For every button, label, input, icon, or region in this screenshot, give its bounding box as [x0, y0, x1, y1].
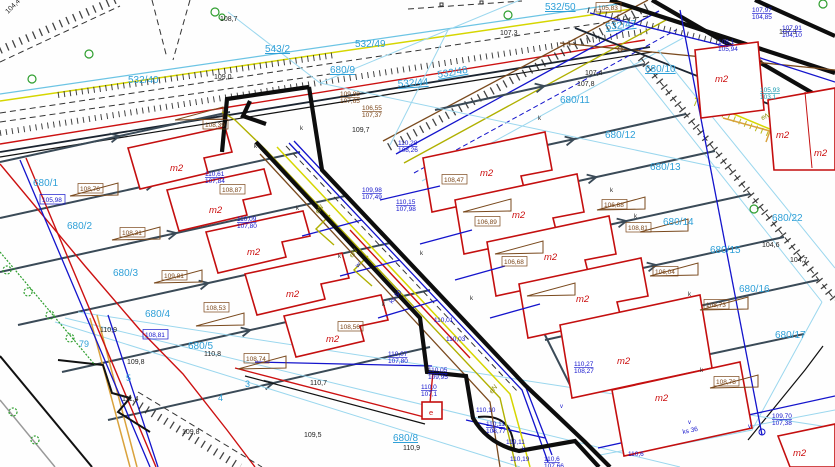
building-label: m2 [617, 356, 631, 367]
map-label: 109,81 [164, 273, 184, 280]
map-label: 110,05 [428, 367, 448, 374]
map-label: 110,11 [486, 421, 505, 428]
water-line-red [0, 40, 645, 144]
parcel-number: 680/3 [113, 268, 138, 279]
map-label: 107,91 [782, 25, 802, 32]
parcel-number: 680/4 [145, 309, 170, 320]
map-label: 104,4 [4, 0, 21, 15]
parcel-number: 680/15 [710, 245, 741, 256]
building-label: m2 [655, 393, 669, 404]
map-canvas: 532/40532/49532/44532/48532/47532/50543/… [0, 0, 835, 467]
tree-icon [211, 8, 219, 16]
map-label: 107,1 [421, 391, 438, 398]
map-label: 110,6 [544, 456, 560, 463]
map-label: 109,7 [352, 127, 370, 134]
map-label: 108,27 [574, 368, 594, 375]
map-label: 108,1 [718, 39, 735, 46]
parcel-number: 680/8 [393, 433, 418, 444]
map-label: 105,83 [598, 5, 618, 12]
map-label: 103,1 [760, 94, 777, 101]
parcel-number: 680/13 [650, 162, 681, 173]
map-label: 109,0 [214, 74, 232, 81]
map-label: 110,9 [403, 445, 420, 452]
map-label: v [688, 420, 691, 426]
roof-arrows [196, 313, 244, 326]
map-label: k [538, 116, 542, 122]
building [695, 42, 764, 118]
map-label: 110,09107,80 [237, 216, 257, 230]
map-label: 79 [79, 339, 89, 349]
map-label: k [610, 188, 614, 194]
map-label: 110,6107,66 [544, 456, 564, 467]
map-label: 110,9 [100, 327, 117, 334]
map-label: 104,7 [790, 257, 808, 264]
map-label: 107,4 [585, 70, 603, 77]
tree-icon [819, 0, 827, 8]
map-label: 107,91104,10 [782, 25, 802, 39]
map-label: 107,97104,85 [752, 7, 772, 21]
parcel-number: 543/2 [265, 44, 290, 55]
map-label: 109,5 [304, 432, 322, 439]
map-label: 110,7 [310, 380, 327, 387]
map-label: 107,80 [388, 358, 408, 365]
map-label: 4 [218, 393, 223, 403]
parcel-number: 532/47 [605, 19, 637, 33]
road-edge-dashed [0, 74, 330, 122]
map-label: 104,85 [752, 14, 772, 21]
map-label: 109,70107,38 [772, 413, 792, 427]
map-label: 108,7 [220, 16, 238, 23]
map-label: 109,8 [127, 359, 145, 366]
map-label: 109,95 [428, 374, 448, 381]
parcel-number: 532/44 [397, 77, 429, 90]
map-label: 107,66 [544, 463, 564, 467]
map-label: 106,88 [604, 202, 624, 209]
building-label: m2 [209, 205, 223, 216]
map-label: 108,47 [444, 177, 464, 184]
parcel-number: 680/17 [775, 330, 806, 341]
parcel-number: 680/16 [739, 284, 770, 295]
map-label: 110,19 [510, 456, 530, 463]
map-label: 110,15 [396, 199, 416, 206]
slope-dashed [138, 392, 262, 467]
map-label: 108,77 [486, 428, 506, 435]
building-label: m2 [326, 334, 340, 345]
map-label: 5 [126, 373, 131, 383]
map-label: 106,55107,37 [362, 105, 382, 119]
building-label: m2 [480, 168, 494, 179]
map-label: 110,09 [237, 216, 257, 223]
map-label: k [300, 126, 304, 132]
map-label: 110,8 [204, 351, 221, 358]
road-edge-navy [0, 47, 650, 152]
parcel-number: 532/49 [355, 39, 386, 50]
building-label: m2 [776, 130, 790, 141]
road-edge-dashed [0, 6, 120, 62]
map-label: 110,6 [628, 451, 644, 458]
map-label: 109,88 [340, 91, 360, 98]
map-label: 107,3 [500, 30, 518, 37]
map-label: 109,98107,49 [362, 187, 382, 201]
driveway-dashed [152, 0, 190, 60]
water-line [235, 368, 433, 418]
water-line [26, 158, 156, 467]
building [778, 424, 835, 467]
tree-icon [85, 50, 93, 58]
map-label: 108,76 [80, 186, 100, 193]
map-label: 107,49 [362, 194, 382, 201]
map-label: 110,0 [421, 384, 437, 391]
map-label: 109,8 [182, 429, 200, 436]
map-label: v [560, 404, 563, 410]
map-label: v [492, 428, 495, 434]
map-label: 110,07 [388, 351, 408, 358]
building-label: m2 [544, 252, 558, 263]
map-label: 110,10 [476, 407, 496, 414]
map-label: 108,39 [205, 122, 225, 129]
building-label: m2 [576, 294, 590, 305]
map-label: 106,04 [655, 269, 675, 276]
building-label: m2 [793, 448, 807, 459]
parcel-number: 680/9 [330, 65, 355, 76]
building-label: m2 [286, 289, 300, 300]
map-label: 110,0107,1 [421, 384, 438, 398]
map-label: 108,53 [206, 305, 226, 312]
map-label: 110,03 [446, 336, 466, 343]
map-label: 106,89 [477, 219, 497, 226]
boundary-thick [243, 101, 266, 124]
parcel-number: 532/40 [128, 75, 159, 86]
parcel-number: 680/10 [645, 64, 676, 75]
map-label: 108,56 [340, 324, 360, 331]
map-label: 109,88107,65 [340, 91, 360, 105]
map-label: 105,93 [760, 87, 780, 94]
map-label: 110,61107,84 [205, 171, 225, 185]
map-label: v [748, 424, 751, 430]
parcel-number: 532/50 [545, 2, 576, 13]
parcel-number: 680/11 [560, 95, 590, 106]
tree-icon [750, 205, 758, 213]
map-label: 105,98 [42, 197, 62, 204]
map-label: 110,11 [506, 439, 525, 446]
building-label: m2 [512, 210, 526, 221]
map-label: 106,68 [504, 259, 524, 266]
map-label: eN [488, 383, 500, 395]
map-label: 110,28 [398, 140, 418, 147]
map-label: 110,11108,77 [486, 421, 506, 435]
map-label: 105,94 [718, 46, 738, 53]
map-label: 108,78 [716, 379, 736, 386]
map-label: v [522, 446, 525, 452]
boundary-black [0, 356, 92, 467]
survey-marker [480, 1, 483, 4]
map-label: 108,26 [398, 147, 418, 154]
map-label: 107,84 [205, 178, 225, 185]
map-label: 111,4 [122, 396, 139, 403]
map-label: 107,80 [237, 223, 257, 230]
heat-line [97, 315, 137, 467]
map-label: 110,61 [205, 171, 225, 178]
map-label: 107,38 [772, 420, 792, 427]
path-dashed [408, 1, 522, 9]
map-label: 107,97 [752, 7, 772, 14]
map-label: 107,8 [577, 81, 595, 88]
map-label: 104,10 [782, 32, 802, 39]
building-label: m2 [814, 148, 828, 159]
building-label: m2 [170, 163, 184, 174]
map-label: 110,07107,80 [388, 351, 408, 365]
survey-marker [440, 3, 443, 6]
parcel-number: 680/2 [67, 221, 92, 232]
map-label: 108,73 [706, 302, 726, 309]
map-label: 108,74 [246, 356, 266, 363]
map-label: e [429, 408, 433, 417]
track-gray [0, 400, 55, 467]
map-label: 110,05109,95 [428, 367, 448, 381]
map-label: 108,81 [628, 225, 648, 232]
map-label: k [420, 251, 424, 257]
map-label: k [470, 296, 474, 302]
map-label: 110,15107,98 [396, 199, 416, 213]
cadastral-map: 532/40532/49532/44532/48532/47532/50543/… [0, 0, 835, 467]
map-label: 110,28108,26 [398, 140, 418, 154]
map-label: 110,01 [434, 317, 454, 324]
map-label: 108,87 [222, 187, 242, 194]
building-label: m2 [247, 247, 261, 258]
tree-icon [504, 11, 512, 19]
map-label: 104,6 [762, 242, 780, 249]
map-label: 107,98 [396, 206, 416, 213]
map-label: 3 [245, 379, 250, 389]
parcel-number: 680/22 [772, 213, 803, 224]
tree-icon [28, 75, 36, 83]
map-label: 108,31 [122, 230, 142, 237]
map-label: 106,55 [362, 105, 382, 112]
map-label: 108,81 [145, 332, 165, 339]
building-label: m2 [715, 74, 729, 85]
map-label: 110,27108,27 [574, 361, 594, 375]
parcel-number: 680/14 [663, 217, 694, 228]
map-label: 110,27 [574, 361, 594, 368]
map-label: 107,65 [340, 98, 360, 105]
map-label: 109,70 [772, 413, 792, 420]
tree-icon [24, 288, 32, 296]
map-label: 109,98 [362, 187, 382, 194]
parcel-number: 680/12 [605, 130, 636, 141]
parcel-number: 680/1 [33, 178, 58, 189]
map-label: 107,37 [362, 112, 382, 119]
map-label: k [382, 302, 386, 308]
